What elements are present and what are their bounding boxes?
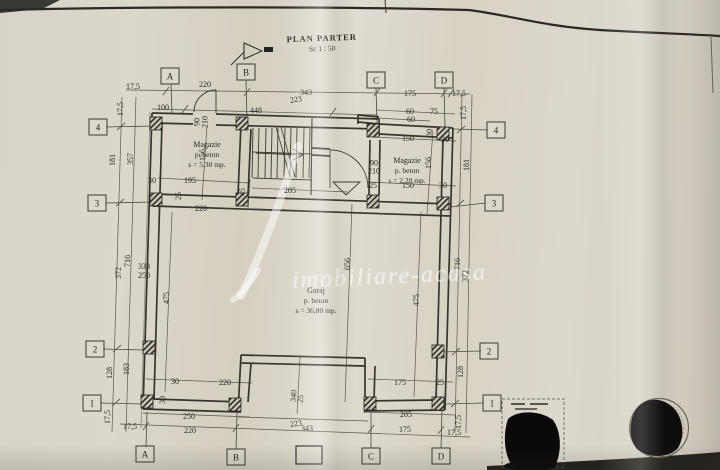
dimension-label: 45 bbox=[239, 188, 247, 196]
dimension-label: 25 bbox=[297, 395, 306, 404]
dimension-label: 656 bbox=[344, 258, 352, 270]
dimension-label: 175 bbox=[394, 379, 406, 387]
grid-marker-left-2: 2 bbox=[86, 341, 105, 358]
grid-marker-right-3: 3 bbox=[485, 195, 504, 212]
dimension-label: 17,5 bbox=[123, 423, 137, 431]
dimension-label: 17,5 bbox=[452, 90, 466, 98]
grid-marker-left-3: 3 bbox=[88, 195, 107, 212]
grid-marker-bottom-B: B bbox=[227, 449, 246, 466]
dimension-label: 475 bbox=[163, 292, 171, 304]
dimension-label: 30 bbox=[439, 182, 447, 190]
grid-marker-left-1: 1 bbox=[83, 395, 102, 412]
dimension-label: 357 bbox=[127, 153, 135, 165]
staircase bbox=[252, 127, 312, 180]
dimension-label: 181 bbox=[463, 159, 471, 171]
dimension-label: 195 bbox=[184, 177, 196, 185]
dimension-label: 17,5 bbox=[104, 410, 112, 424]
dimension-label: 25 bbox=[369, 182, 377, 190]
dimension-label: 25 bbox=[175, 192, 183, 200]
dimension-label: 30 bbox=[148, 177, 156, 185]
dimension-label: 343 bbox=[300, 89, 312, 97]
door-size-label: 90210 bbox=[193, 116, 208, 128]
dimension-label: 128 bbox=[106, 367, 114, 379]
dimension-label: 30 bbox=[441, 136, 449, 144]
dimension-label: 372 bbox=[462, 270, 470, 282]
grid-marker-right-1: 1 bbox=[483, 395, 502, 412]
dimension-label: 30 bbox=[159, 396, 167, 404]
dimension-label: 223 bbox=[290, 419, 303, 429]
door-size-label: 90210 bbox=[368, 159, 380, 174]
dimension-label: 175 bbox=[404, 90, 416, 98]
dimension-label: 75 bbox=[430, 108, 438, 116]
dimension-label: 17,5 bbox=[117, 102, 125, 116]
grid-marker-bottom-A: A bbox=[136, 446, 155, 463]
dimension-label: 448 bbox=[250, 107, 262, 115]
rect-stamp bbox=[502, 399, 564, 470]
dimension-label: 30 bbox=[426, 129, 434, 137]
grid-marker-left-4: 4 bbox=[89, 119, 108, 136]
dimension-label: 17,5 bbox=[460, 106, 468, 120]
dimension-label: 372 bbox=[115, 267, 123, 279]
grid-marker-top-D: D bbox=[435, 72, 454, 89]
dimension-label: 220 bbox=[195, 205, 207, 213]
dimension-label: 205 bbox=[400, 411, 412, 419]
dimension-label: 183 bbox=[123, 363, 131, 375]
section-marker-icon bbox=[231, 43, 273, 65]
dimension-label: 338 bbox=[138, 263, 150, 271]
photographed-floor-plan: PLAN PARTER Sc 1 : 50 imobiliare-acasa 1… bbox=[0, 0, 720, 470]
drawing-title-block: PLAN PARTER Sc 1 : 50 bbox=[272, 31, 373, 54]
dimension-label: 250 bbox=[183, 413, 195, 421]
dimension-label: 100 bbox=[157, 104, 169, 112]
dimension-label: 60 bbox=[407, 116, 415, 124]
room-label-magazie: Magaziep. betons = 5,30 mp. bbox=[188, 140, 225, 170]
dimension-label: 181 bbox=[109, 154, 117, 166]
plan-linework bbox=[0, 0, 720, 470]
dimension-label: 30 bbox=[171, 378, 179, 386]
grid-marker-right-2: 2 bbox=[480, 343, 499, 360]
grid-marker-top-B: B bbox=[237, 64, 256, 81]
grid-marker-bottom-C: C bbox=[362, 448, 381, 465]
dimension-label: 716 bbox=[124, 255, 132, 267]
dimension-label: 150 bbox=[402, 135, 414, 143]
dimension-label: 128 bbox=[457, 366, 465, 378]
round-stamp bbox=[630, 399, 689, 458]
dimension-label: 156 bbox=[425, 157, 433, 169]
dimension-label: 475 bbox=[413, 294, 421, 306]
dimension-label: 17,5 bbox=[455, 415, 463, 429]
room-label-magazie: Magaziep. betons = 2,20 mp. bbox=[388, 156, 425, 186]
grid-marker-top-C: C bbox=[367, 72, 386, 89]
dimension-label: 250 bbox=[138, 272, 150, 280]
dimension-label: 220 bbox=[219, 379, 231, 387]
dimension-label: 205 bbox=[284, 187, 296, 195]
grid-marker-bottom-D: D bbox=[432, 448, 451, 465]
dimension-label: 716 bbox=[454, 258, 462, 270]
dimension-label: 17,5 bbox=[447, 429, 461, 437]
dimension-label: 17,5 bbox=[126, 83, 140, 91]
dimension-label: 175 bbox=[399, 426, 411, 434]
dimension-label: 220 bbox=[184, 427, 196, 435]
grid-marker-right-4: 4 bbox=[487, 122, 506, 139]
dimension-label: 220 bbox=[199, 81, 211, 89]
paper-edges bbox=[0, 0, 720, 470]
room-label-garaj: Garajp. betons = 36,80 mp. bbox=[295, 286, 336, 316]
dimension-label: 223 bbox=[290, 95, 303, 105]
dimension-label: 25 bbox=[436, 379, 444, 387]
dimension-label: 343 bbox=[301, 425, 313, 433]
grid-marker-top-A: A bbox=[161, 68, 180, 85]
